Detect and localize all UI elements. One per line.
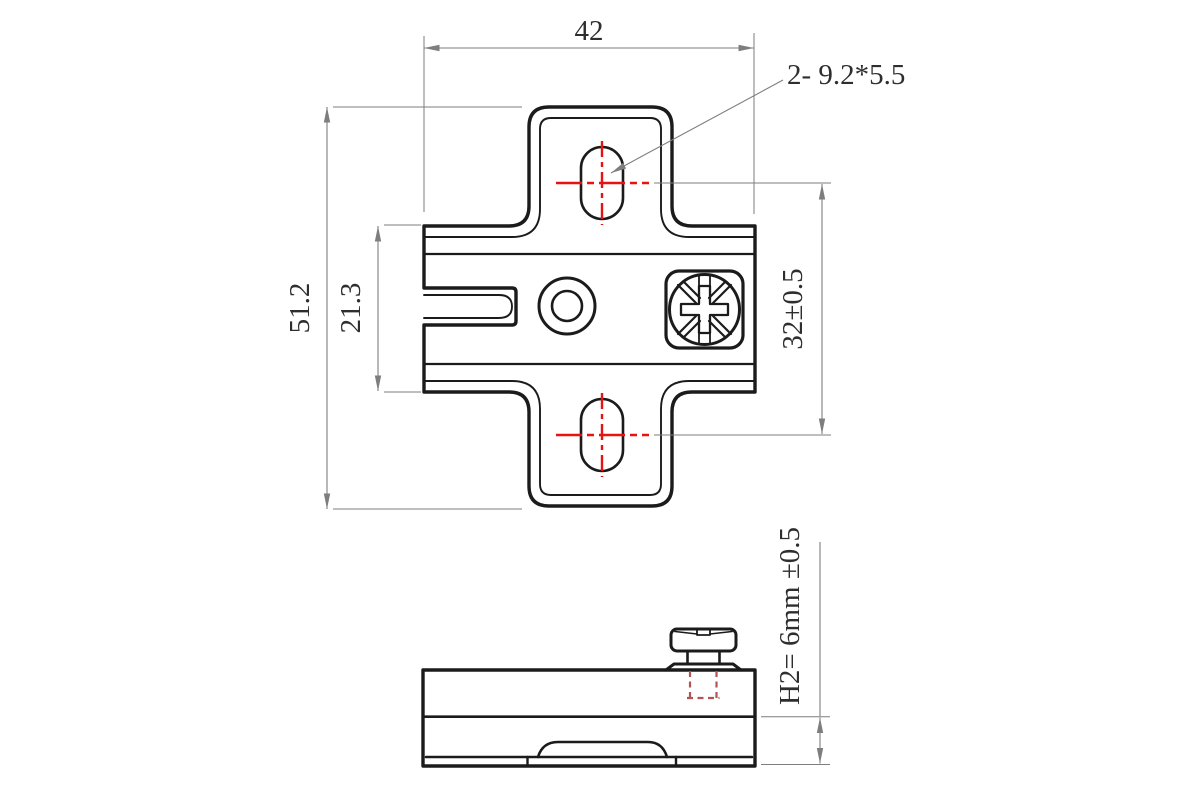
dim-overall-height-label: 51.2 <box>284 283 316 334</box>
drawing-canvas: 42 51.2 21.3 32±0.5 2- 9.2*5.5 H2= 6mm ±… <box>0 0 1200 800</box>
dim-overall-height-51-2: 51.2 <box>284 107 522 509</box>
dim-h2-label: H2= 6mm ±0.5 <box>774 527 806 705</box>
dim-h2-height: H2= 6mm ±0.5 <box>761 527 830 765</box>
dim-hole-spacing-label: 32±0.5 <box>777 268 809 349</box>
callout-slots-label: 2- 9.2*5.5 <box>787 59 905 91</box>
engineering-drawing: 42 51.2 21.3 32±0.5 2- 9.2*5.5 H2= 6mm ±… <box>0 0 1200 800</box>
dim-body-height-label: 21.3 <box>335 283 367 334</box>
screw-side-view <box>666 629 741 670</box>
plate-outer-contour <box>424 107 755 506</box>
dim-width-label: 42 <box>575 15 604 47</box>
side-view-plate <box>423 629 755 766</box>
screw-stem <box>688 651 720 664</box>
extension-line <box>384 225 421 392</box>
left-slot-inner-edge <box>424 295 512 318</box>
dim-body-height-21-3: 21.3 <box>335 225 421 392</box>
top-view-plate <box>424 107 755 506</box>
